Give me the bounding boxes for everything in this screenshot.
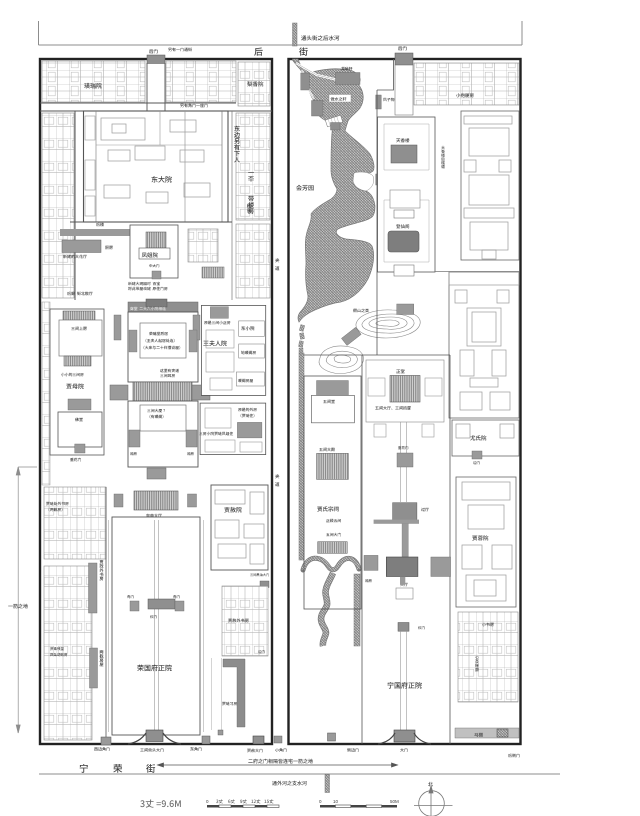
svg-text:50M: 50M xyxy=(390,799,399,804)
svg-text:10: 10 xyxy=(333,799,339,804)
